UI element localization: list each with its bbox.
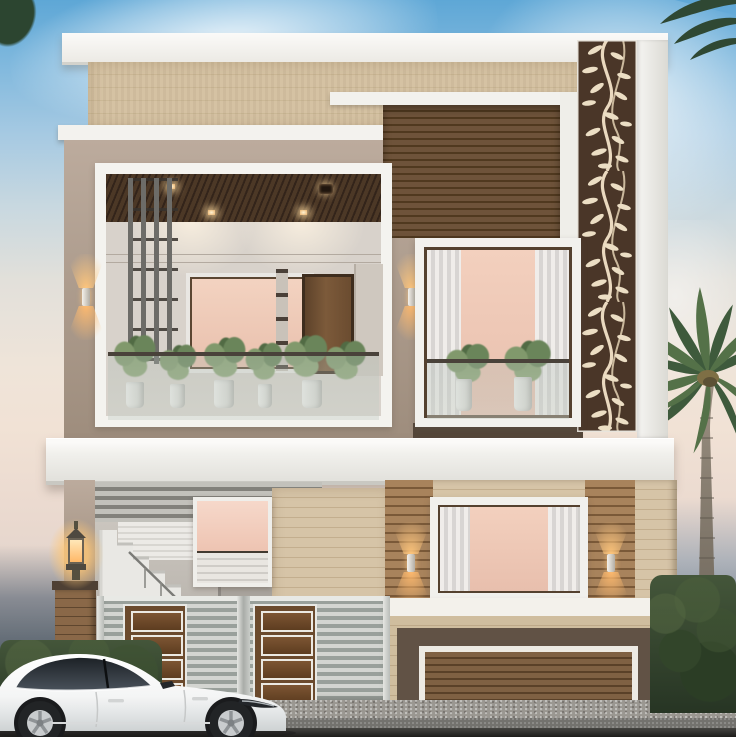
white-sedan-car bbox=[0, 643, 300, 737]
sconce-body bbox=[407, 554, 415, 572]
juliet-glass-railing bbox=[427, 359, 569, 419]
shrubs-right bbox=[650, 575, 736, 713]
window-peach-glow bbox=[470, 507, 548, 591]
balcony-glass-railing bbox=[108, 352, 379, 420]
floral-lasercut-panel bbox=[577, 40, 637, 432]
ceiling-downlight bbox=[300, 210, 307, 215]
floor-slab-band bbox=[46, 438, 674, 485]
gate-panel-slat bbox=[131, 611, 183, 632]
sconce-up-glow bbox=[591, 522, 631, 554]
window-blind-lower bbox=[197, 553, 268, 583]
vent-window bbox=[319, 184, 333, 194]
slat-panel-top-ledge bbox=[330, 92, 582, 105]
wall-wash-glow bbox=[236, 222, 366, 277]
curtain-left bbox=[440, 507, 470, 591]
scene-canvas bbox=[0, 0, 736, 737]
wall-sconce-upper-left bbox=[66, 254, 106, 340]
lantern-glass bbox=[68, 538, 84, 564]
white-corner-column bbox=[637, 40, 668, 438]
sconce-body bbox=[82, 288, 90, 306]
car-door-handle bbox=[108, 699, 124, 702]
sconce-up-glow bbox=[391, 522, 431, 554]
sconce-body bbox=[607, 554, 615, 572]
gate-panel-slat bbox=[261, 611, 313, 632]
sconce-up-glow bbox=[66, 254, 106, 288]
dark-wood-slat-panel bbox=[383, 105, 560, 238]
wall-sconce-ground-left bbox=[391, 522, 431, 604]
ground-right-window bbox=[430, 497, 588, 601]
ceiling-downlight bbox=[208, 210, 215, 215]
upper-left-white-ledge bbox=[58, 125, 394, 140]
ground-left-window bbox=[193, 497, 272, 587]
lantern-stem bbox=[72, 570, 80, 580]
upper-right-window bbox=[415, 238, 581, 427]
curtain-right bbox=[548, 507, 580, 591]
upper-balcony-opening bbox=[95, 163, 392, 427]
lantern-cap bbox=[66, 528, 86, 538]
gate-post-right bbox=[383, 596, 390, 712]
car-door-handle bbox=[192, 697, 208, 700]
sconce-down-glow bbox=[66, 306, 106, 340]
lantern-finial bbox=[74, 521, 78, 529]
wall-sconce-ground-right bbox=[591, 522, 631, 604]
window-peach-glow bbox=[197, 501, 268, 553]
garage-wood-door bbox=[425, 652, 632, 706]
pillar-lantern bbox=[62, 521, 90, 583]
